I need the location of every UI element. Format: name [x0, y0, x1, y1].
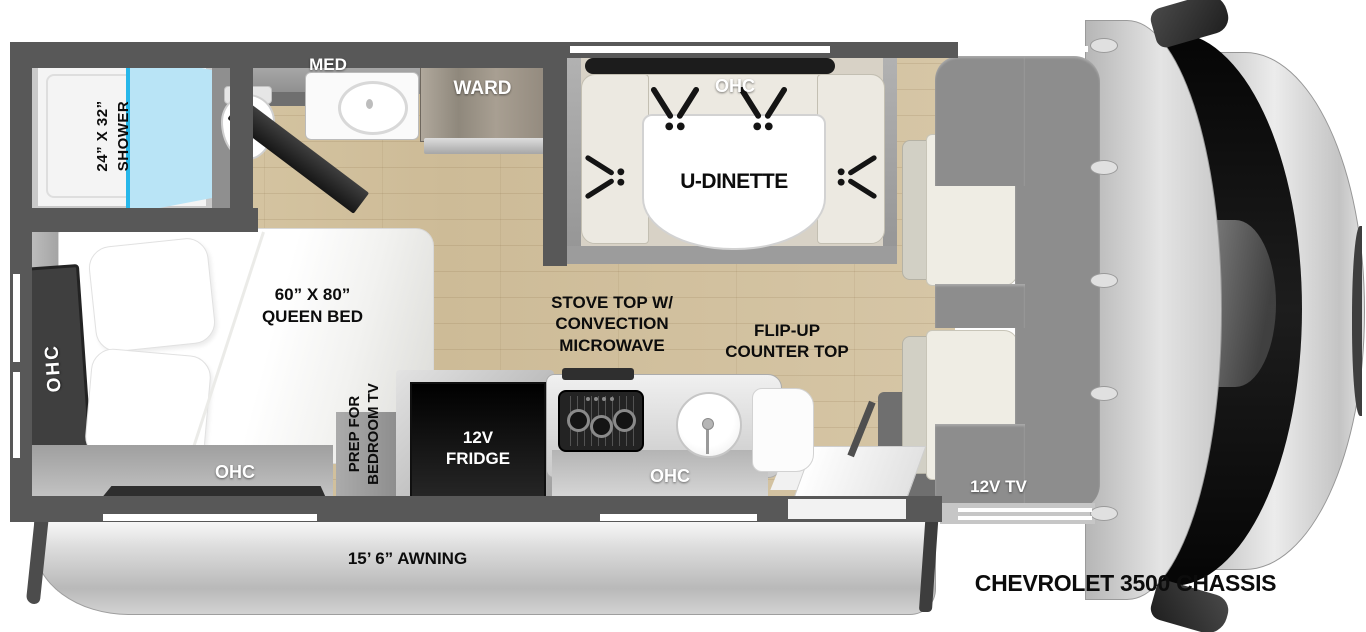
bedroom-ohc-rear-label: OHC [190, 462, 280, 483]
wall-bathroom [543, 42, 567, 266]
faucet-knob-icon [702, 418, 714, 430]
entry-door-threshold [788, 499, 906, 519]
cabover-bunk [1015, 56, 1100, 510]
marker-light-icon [1090, 38, 1118, 53]
tv-prep-line1: PREP FOR [346, 349, 365, 519]
shower-glass [128, 54, 212, 214]
burner-icon [590, 415, 613, 438]
window-strip [958, 516, 1092, 520]
dinette-label: U-DINETTE [680, 170, 788, 194]
bed-size-label: 60” X 80” [225, 284, 400, 306]
shower-name-label: SHOWER [113, 51, 134, 221]
burner-icon [613, 409, 636, 432]
kitchen-ohc-label: OHC [625, 466, 715, 487]
window-strip [13, 372, 20, 458]
rv-floorplan: 15’ 6” AWNING CHEVROLET 3500 CHASSIS 60 … [0, 0, 1366, 632]
seatbelt-icon [833, 151, 878, 203]
stove-icon [558, 390, 644, 452]
fridge-label-line1: 12V [463, 427, 493, 448]
burner-icon [567, 409, 590, 432]
wall-shower [230, 42, 253, 212]
window-strip [958, 508, 1092, 512]
dinette-window [585, 58, 835, 74]
stove-line2: CONVECTION [512, 313, 712, 334]
shower-label: 24” X 32” SHOWER [92, 51, 138, 221]
marker-light-icon [1090, 273, 1118, 288]
window-strip [570, 46, 830, 53]
stove-line1: STOVE TOP W/ [512, 292, 712, 313]
tv-label: 12V TV [936, 477, 1061, 497]
sink-faucet-icon [366, 99, 373, 109]
pillow [87, 236, 217, 354]
bathroom-sink [305, 72, 419, 140]
tv-prep-line2: BEDROOM TV [365, 349, 384, 519]
bedroom-ohc-side-label: OHC [41, 343, 66, 393]
microwave-vent [562, 368, 634, 380]
flip-line2: COUNTER TOP [692, 341, 882, 362]
seatbelt-icon [585, 151, 630, 203]
marker-light-icon [1090, 160, 1118, 175]
queen-bed-label: 60” X 80” QUEEN BED [225, 284, 400, 328]
fridge: 12V FRIDGE [410, 382, 546, 514]
stove-knobs-icon [586, 397, 590, 401]
marker-light-icon [1090, 506, 1118, 521]
tv-prep-label: PREP FOR BEDROOM TV [346, 349, 386, 519]
cabover-bunk [935, 424, 1025, 510]
chassis-label: CHEVROLET 3500 CHASSIS [948, 570, 1303, 597]
flip-line1: FLIP-UP [692, 320, 882, 341]
window-strip [13, 274, 20, 362]
cabover-bunk [935, 56, 1025, 186]
med-label: MED [286, 55, 370, 75]
front-grille-line [1352, 226, 1362, 416]
awning-label: 15’ 6” AWNING [315, 549, 500, 569]
cab-skirt [940, 503, 1095, 524]
wardrobe-shelf [424, 138, 556, 154]
stove-line3: MICROWAVE [512, 335, 712, 356]
window-strip [960, 46, 1088, 52]
shower-size-label: 24” X 32” [92, 51, 113, 221]
window-strip [600, 514, 757, 521]
stove-label: STOVE TOP W/ CONVECTION MICROWAVE [512, 292, 712, 356]
wardrobe-label: WARD [420, 78, 545, 100]
sink-basin-icon [338, 81, 408, 135]
marker-light-icon [1090, 386, 1118, 401]
dinette-ohc-label: OHC [685, 76, 785, 97]
cabover-bunk [935, 284, 1025, 328]
flip-up-label: FLIP-UP COUNTER TOP [692, 320, 882, 363]
flip-up-counter [752, 388, 814, 472]
window-strip [103, 514, 317, 521]
bed-name-label: QUEEN BED [225, 306, 400, 328]
fridge-label-line2: FRIDGE [446, 448, 510, 469]
